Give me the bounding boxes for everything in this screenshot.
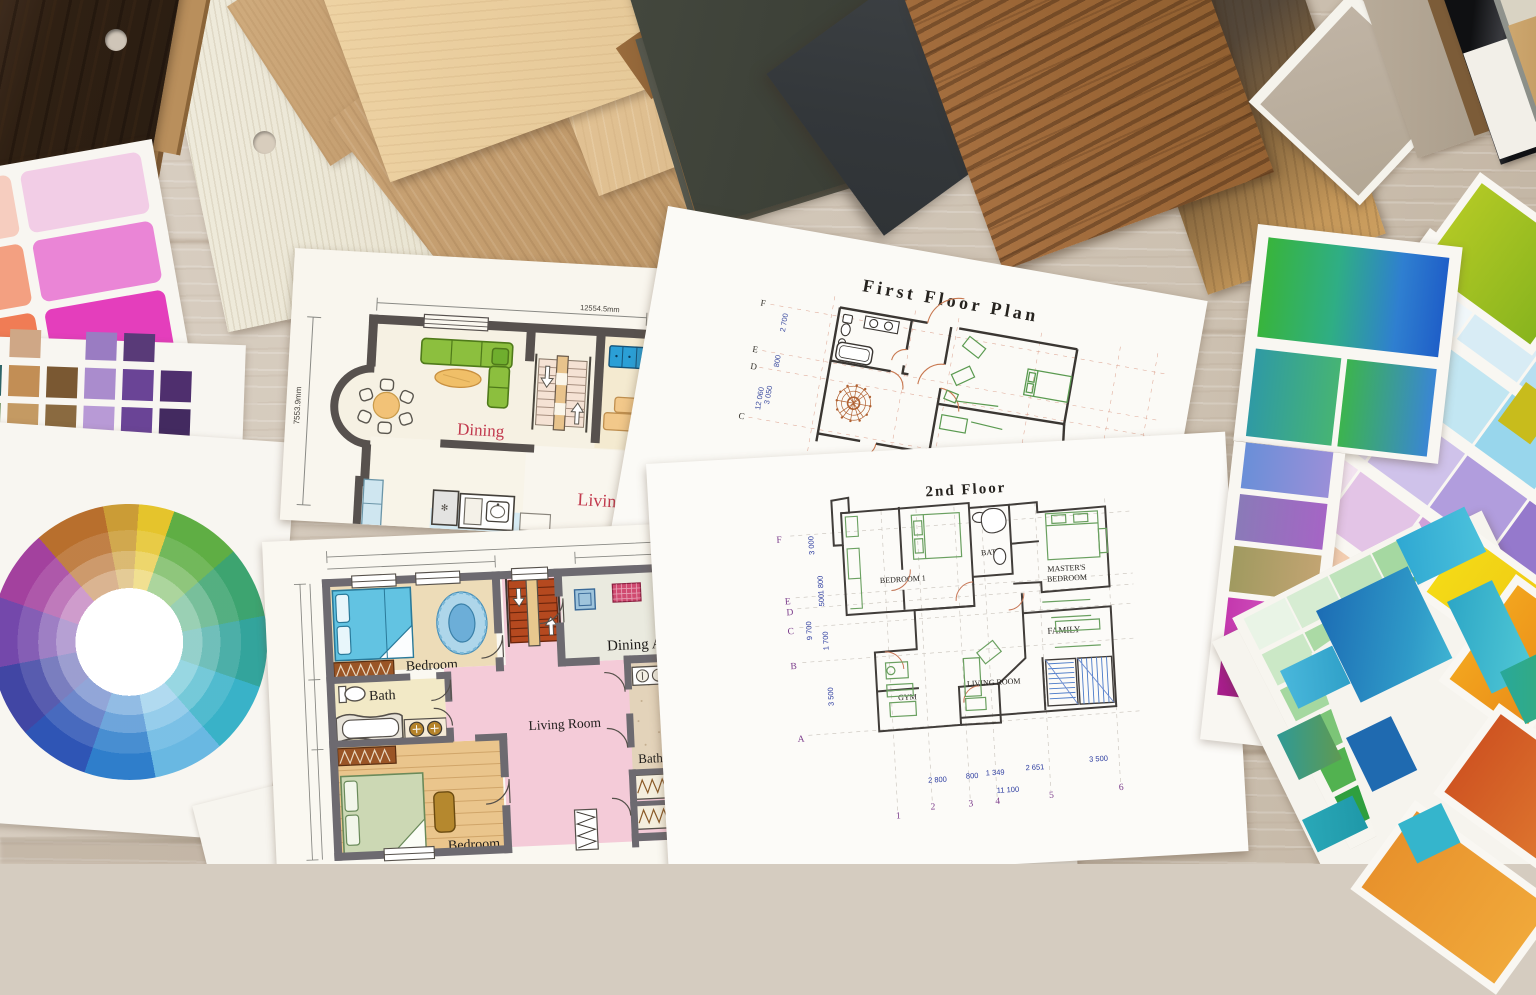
svg-text:2 651: 2 651 bbox=[1025, 762, 1044, 772]
svg-text:2nd Floor: 2nd Floor bbox=[925, 480, 1007, 500]
svg-text:1 800: 1 800 bbox=[816, 575, 826, 594]
svg-text:3 500: 3 500 bbox=[826, 687, 836, 706]
svg-text:BEDROOM: BEDROOM bbox=[1047, 573, 1087, 584]
svg-text:500: 500 bbox=[817, 594, 827, 607]
svg-text:C: C bbox=[738, 411, 746, 422]
svg-text:3: 3 bbox=[968, 799, 974, 809]
svg-text:F: F bbox=[760, 298, 767, 309]
svg-text:1 700: 1 700 bbox=[821, 631, 831, 650]
svg-text:First Floor Plan: First Floor Plan bbox=[861, 275, 1040, 326]
svg-text:800: 800 bbox=[772, 354, 783, 368]
svg-text:3 000: 3 000 bbox=[806, 536, 816, 555]
svg-text:7553.9mm: 7553.9mm bbox=[292, 386, 303, 425]
svg-text:2: 2 bbox=[930, 802, 936, 812]
svg-text:2 800: 2 800 bbox=[928, 775, 947, 785]
svg-text:Dining: Dining bbox=[457, 419, 506, 441]
svg-text:12 060: 12 060 bbox=[753, 386, 766, 410]
svg-text:✻: ✻ bbox=[440, 503, 448, 513]
svg-text:12554.5mm: 12554.5mm bbox=[580, 303, 620, 314]
svg-text:Dining A: Dining A bbox=[607, 636, 663, 655]
svg-text:E: E bbox=[785, 597, 792, 607]
svg-text:1: 1 bbox=[896, 811, 902, 821]
svg-text:800: 800 bbox=[966, 771, 979, 781]
svg-text:D: D bbox=[786, 608, 794, 618]
svg-text:BEDROOM 1: BEDROOM 1 bbox=[880, 574, 926, 586]
svg-text:D: D bbox=[750, 361, 759, 372]
svg-text:11 100: 11 100 bbox=[997, 785, 1020, 795]
svg-text:F: F bbox=[776, 536, 782, 546]
svg-text:C: C bbox=[787, 627, 794, 637]
svg-text:2 700: 2 700 bbox=[778, 312, 790, 332]
svg-text:A: A bbox=[797, 735, 805, 745]
svg-text:Bath: Bath bbox=[638, 750, 664, 766]
svg-text:Bath: Bath bbox=[369, 688, 396, 704]
svg-text:5: 5 bbox=[1049, 791, 1055, 801]
svg-text:3 500: 3 500 bbox=[1089, 754, 1108, 764]
svg-text:LIVING ROOM: LIVING ROOM bbox=[967, 676, 1021, 688]
svg-text:9 700: 9 700 bbox=[804, 621, 814, 640]
svg-text:6: 6 bbox=[1119, 783, 1125, 793]
svg-text:GYM: GYM bbox=[898, 692, 917, 702]
svg-text:E: E bbox=[752, 344, 760, 355]
svg-text:B: B bbox=[790, 662, 797, 672]
svg-text:1 349: 1 349 bbox=[986, 767, 1005, 777]
svg-text:4: 4 bbox=[995, 797, 1001, 807]
